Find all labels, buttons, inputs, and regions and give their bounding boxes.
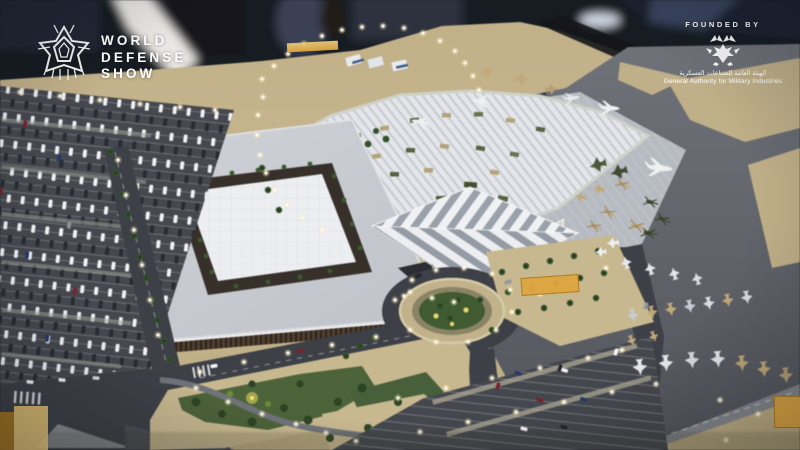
wds-word-2: DEFENSE (101, 50, 186, 67)
wds-word-3: SHOW (101, 66, 186, 83)
wds-wordmark: WORLD DEFENSE SHOW (101, 33, 186, 83)
video-frame: WORLD DEFENSE SHOW FOUNDED BY الهيئة الع… (0, 0, 800, 450)
world-defense-show-star-icon (36, 23, 92, 83)
wds-word-1: WORLD (101, 33, 186, 50)
gold-accent-bar-bottom-right (774, 396, 800, 428)
world-defense-show-logo: WORLD DEFENSE SHOW (36, 23, 186, 83)
gold-accent-bar-bottom-left-light (14, 406, 48, 450)
gold-accent-bar-bottom-left-dark (0, 412, 14, 450)
founder-name-arabic: الهيئة العامة للصناعات العسكرية (650, 69, 796, 77)
founded-by-block: FOUNDED BY الهيئة العامة للصناعات العسكر… (650, 20, 796, 85)
founder-name-english: General Authority for Military Industrie… (650, 78, 796, 85)
founded-by-label: FOUNDED BY (650, 20, 796, 29)
gami-emblem-icon (702, 34, 744, 66)
roundabout (400, 279, 504, 343)
